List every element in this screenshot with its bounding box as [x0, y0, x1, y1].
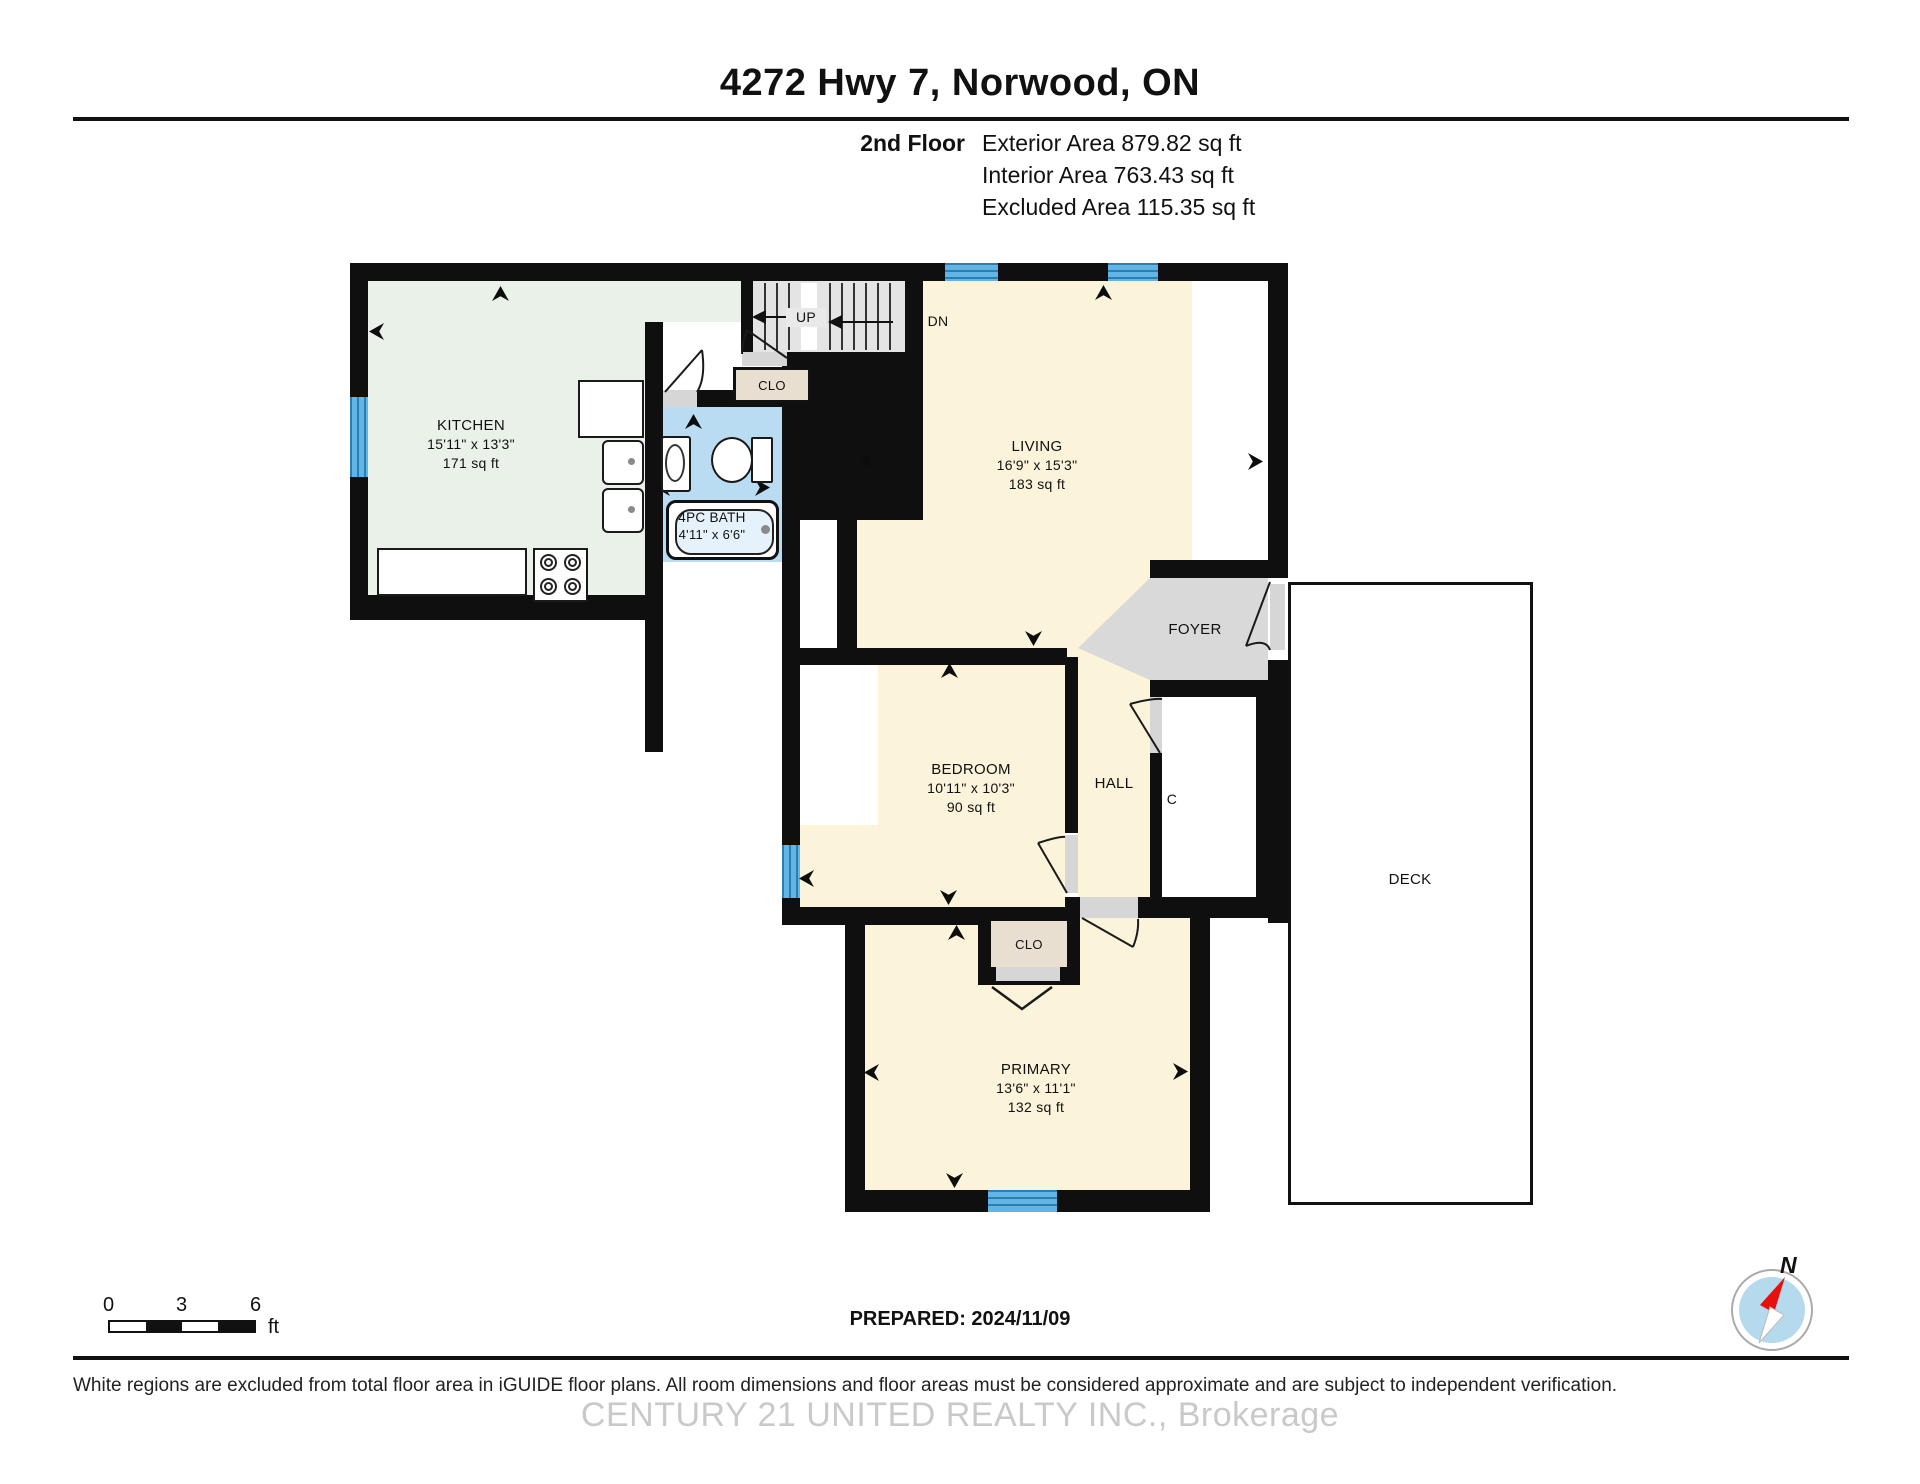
- compass-north-label: N: [1780, 1252, 1797, 1279]
- brokerage-watermark: CENTURY 21 UNITED REALTY INC., Brokerage: [0, 1396, 1920, 1435]
- closet-lower-label: CLO: [989, 935, 1069, 954]
- primary-label: PRIMARY13'6" x 11'1"132 sq ft: [926, 1060, 1146, 1117]
- compass-icon: [1727, 1260, 1819, 1356]
- stair-direction-arrows: [760, 317, 893, 322]
- bath-label: 4PC BATH4'11" x 6'6": [642, 509, 782, 543]
- up-arrowhead-icon: [752, 310, 766, 324]
- closet-c-label: C: [1152, 790, 1192, 809]
- scale-tick-0: 0: [103, 1294, 114, 1317]
- footer-divider: [73, 1356, 1849, 1360]
- stairs-up-label: UP: [786, 308, 826, 327]
- scale-unit: ft: [268, 1316, 279, 1339]
- scale-bar: [108, 1320, 256, 1333]
- living-label: LIVING16'9" x 15'3"183 sq ft: [927, 437, 1147, 494]
- deck-label: DECK: [1350, 870, 1470, 889]
- floor-plan-page: { "header": { "title": "4272 Hwy 7, Norw…: [0, 0, 1920, 1484]
- bifold-door-icon: [992, 987, 1052, 1009]
- stairs-dn-label: DN: [918, 312, 958, 331]
- foyer-label: FOYER: [1135, 620, 1255, 639]
- closet-upper-label: CLO: [733, 376, 811, 395]
- disclaimer-text: White regions are excluded from total fl…: [73, 1375, 1617, 1397]
- hall-label: HALL: [1064, 774, 1164, 793]
- scale-tick-6: 6: [250, 1294, 261, 1317]
- prepared-date: PREPARED: 2024/11/09: [760, 1308, 1160, 1331]
- kitchen-label: KITCHEN15'11" x 13'3"171 sq ft: [361, 416, 581, 473]
- bedroom-label: BEDROOM10'11" x 10'3"90 sq ft: [861, 760, 1081, 817]
- plan-overlay: [0, 0, 1920, 1484]
- scale-tick-3: 3: [176, 1294, 187, 1317]
